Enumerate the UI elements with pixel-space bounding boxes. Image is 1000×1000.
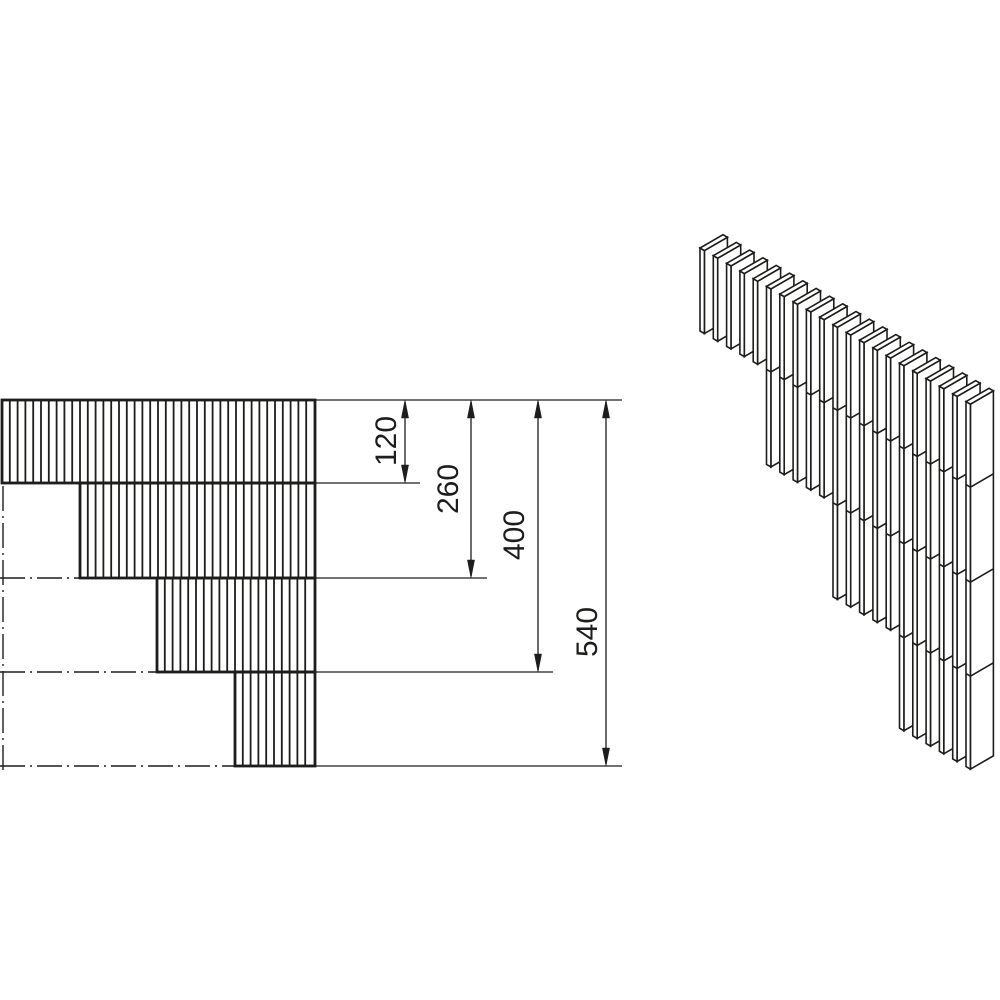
front-band-3 xyxy=(157,578,315,672)
dimension-arrow-down xyxy=(401,465,408,483)
dimension-arrow-down xyxy=(467,560,474,578)
slat-front-face xyxy=(873,348,877,623)
front-band-4 xyxy=(235,672,315,766)
slat-front-face xyxy=(700,248,704,334)
band-border xyxy=(235,672,315,766)
slat-front-face xyxy=(793,302,797,483)
slat-front-face xyxy=(740,271,744,357)
iso-slat xyxy=(966,388,993,769)
dimension-label-400: 400 xyxy=(498,510,531,560)
slat-front-face xyxy=(753,279,757,365)
dimension-arrow-up xyxy=(534,400,541,418)
slat-front-face xyxy=(820,317,824,498)
slat-front-face xyxy=(966,402,970,770)
dimension-arrow-up xyxy=(467,400,474,418)
slat-front-face xyxy=(806,309,810,490)
slat-front-face xyxy=(727,263,731,349)
slat-front-face xyxy=(846,332,850,607)
dimension-label-260: 260 xyxy=(432,464,465,514)
stepped-lamella-corner-drawing: 120260400540 xyxy=(0,0,1000,1000)
slat-front-face xyxy=(939,386,943,754)
technical-drawing-canvas: 120260400540 xyxy=(0,0,1000,1000)
dimension-annotations: 120260400540 xyxy=(316,400,622,766)
slat-front-face xyxy=(913,371,917,739)
slat-front-face xyxy=(900,363,904,731)
dimension-arrow-down xyxy=(534,654,541,672)
front-band-1 xyxy=(2,400,315,483)
dimension-label-120: 120 xyxy=(370,416,403,466)
slat-front-face xyxy=(767,286,771,467)
slat-front-face xyxy=(886,356,890,631)
slat-front-face xyxy=(713,256,717,342)
dimension-arrow-up xyxy=(602,400,609,418)
dimension-arrow-up xyxy=(401,400,408,418)
dimension-arrow-down xyxy=(602,748,609,766)
isometric-view xyxy=(700,235,993,769)
slat-front-face xyxy=(860,340,864,615)
slat-front-face xyxy=(926,379,930,747)
slat-front-face xyxy=(780,294,784,475)
slat-front-face xyxy=(833,325,837,600)
dimension-label-540: 540 xyxy=(571,607,604,657)
front-band-2 xyxy=(80,483,315,578)
front-view xyxy=(0,400,315,773)
slat-front-face xyxy=(953,394,957,762)
